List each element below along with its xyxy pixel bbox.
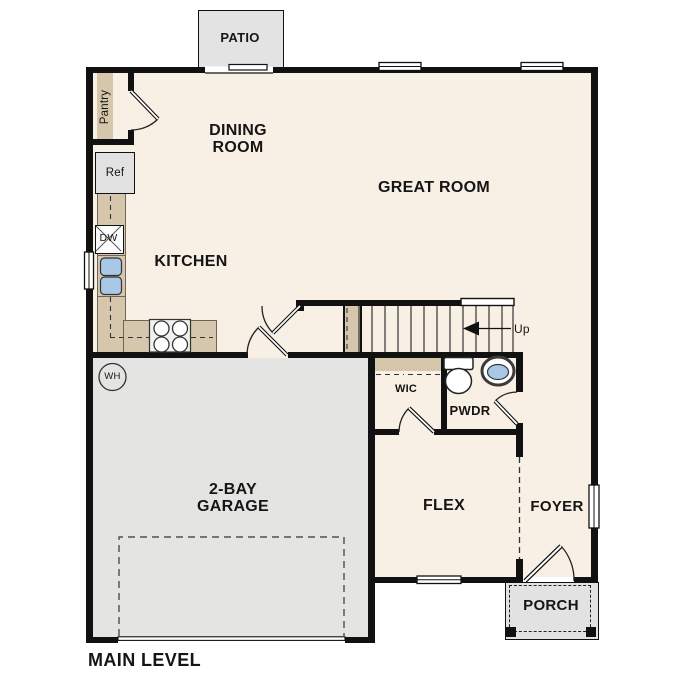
- kitchen-label: KITCHEN: [131, 253, 251, 270]
- flex-label: FLEX: [404, 497, 484, 514]
- floor-plan: PATIO DINING ROOM GREAT ROOM KITCHEN Pan…: [0, 0, 687, 687]
- kitchen-sink-icon: [101, 258, 122, 295]
- pantry-label: Pantry: [99, 77, 111, 137]
- garage-label-line1: 2-BAY: [173, 481, 293, 498]
- garage-door-clearance-dash: [119, 537, 344, 636]
- pantry-door: [131, 91, 158, 130]
- toilet-icon: [444, 358, 473, 394]
- sink-icon: [482, 357, 514, 385]
- dining-room-label-line1: DINING: [178, 122, 298, 139]
- stairs: [359, 303, 513, 352]
- stove-icon: [150, 320, 191, 353]
- garage-label-line2: GARAGE: [173, 498, 293, 515]
- stairs-up-arrow: [463, 322, 511, 336]
- foyer-label: FOYER: [517, 499, 597, 515]
- sliding-door: [205, 65, 273, 74]
- hall-door: [262, 306, 300, 333]
- garage-entry-door: [247, 327, 287, 355]
- page-title: MAIN LEVEL: [88, 650, 308, 671]
- great-room-label: GREAT ROOM: [353, 179, 515, 196]
- window: [85, 252, 94, 289]
- garage-label: 2-BAY GARAGE: [173, 481, 293, 515]
- wic-label: WIC: [381, 383, 431, 395]
- powder-label: PWDR: [440, 404, 500, 418]
- window: [521, 63, 563, 71]
- porch-label: PORCH: [511, 598, 591, 614]
- front-door: [525, 546, 574, 581]
- wic-door: [399, 408, 434, 432]
- water-heater-label: WH: [98, 372, 127, 382]
- patio-label: PATIO: [200, 31, 280, 45]
- window: [379, 63, 421, 71]
- dining-room-label: DINING ROOM: [178, 122, 298, 156]
- stair-railing: [461, 299, 514, 306]
- garage-door: [118, 637, 345, 641]
- window: [417, 576, 461, 584]
- refrigerator-label: Ref: [96, 167, 134, 179]
- dining-room-label-line2: ROOM: [178, 139, 298, 156]
- stairs-up-label: Up: [514, 323, 544, 335]
- dishwasher-label: DW: [95, 233, 122, 244]
